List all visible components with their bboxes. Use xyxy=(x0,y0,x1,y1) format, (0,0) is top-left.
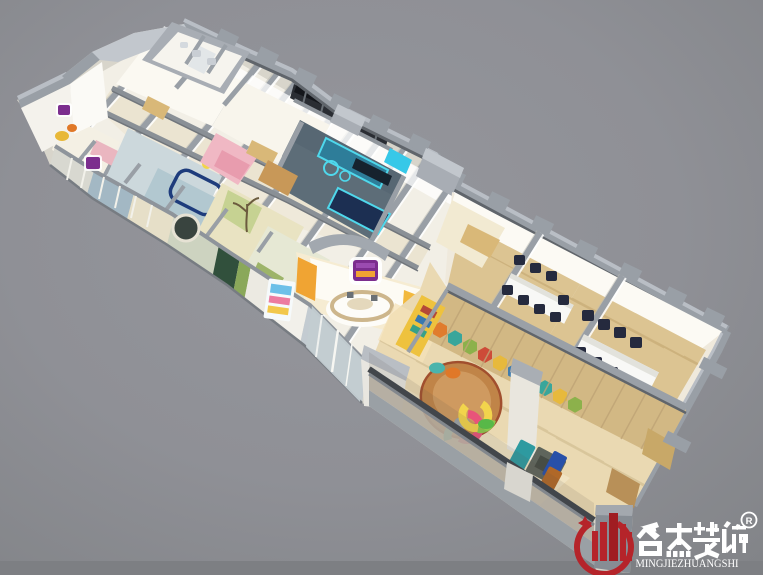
svg-text:R: R xyxy=(746,516,753,527)
svg-text:MINGJIEZHUANGSHI: MINGJIEZHUANGSHI xyxy=(636,558,739,570)
